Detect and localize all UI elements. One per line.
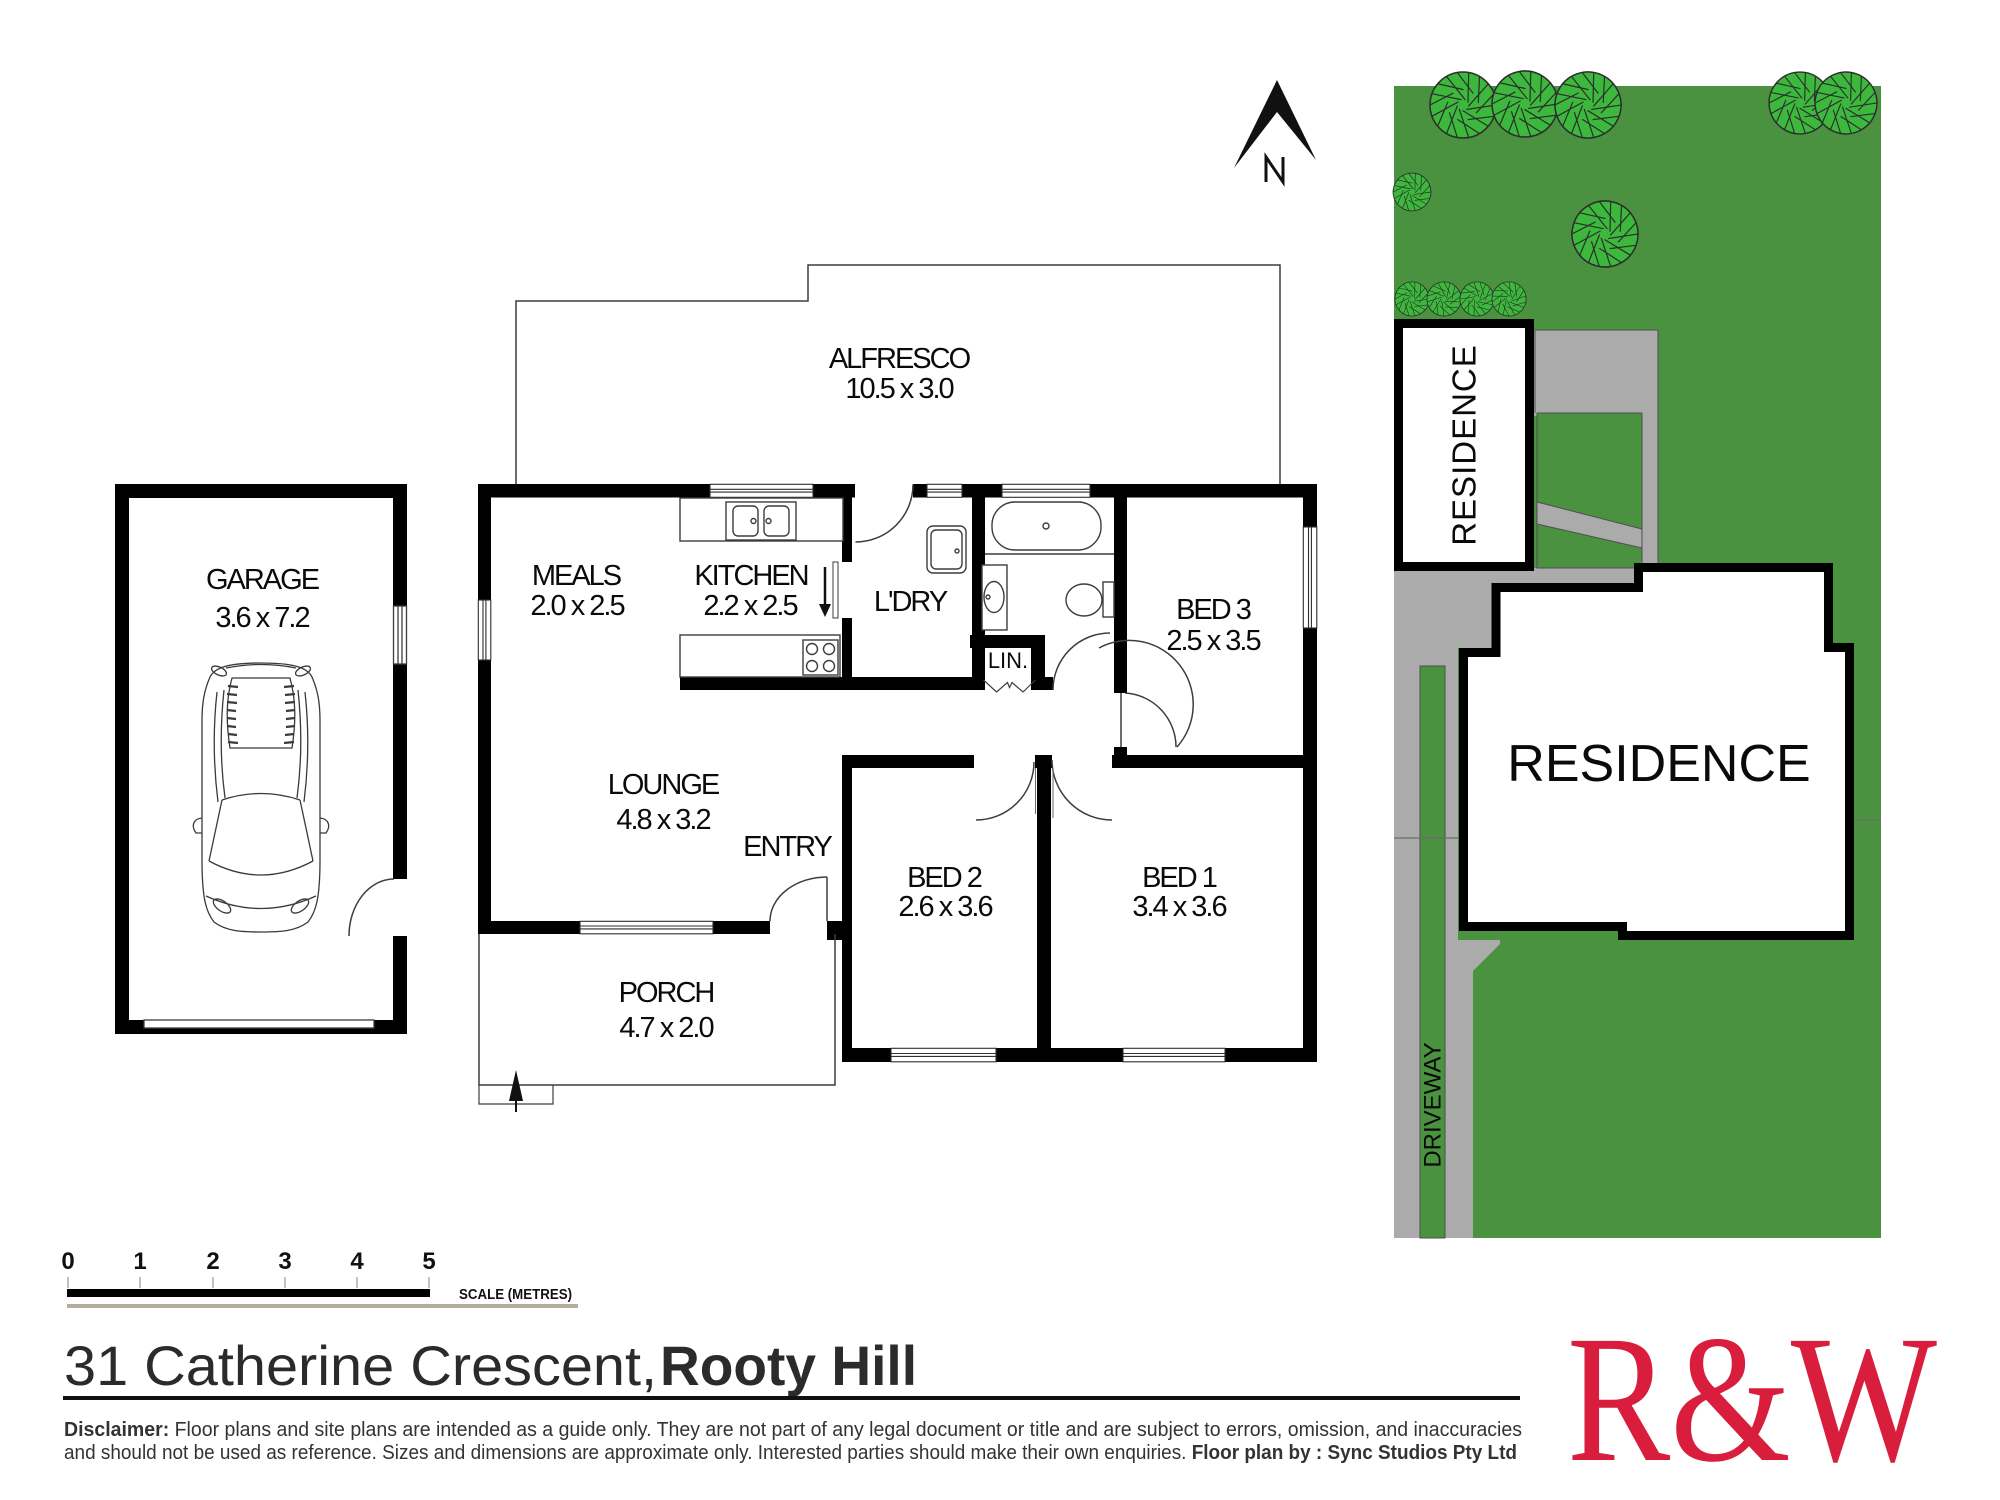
svg-text:R&W: R&W (1567, 1299, 1937, 1500)
svg-text:2.5 x 3.5: 2.5 x 3.5 (1166, 625, 1260, 657)
svg-text:RESIDENCE: RESIDENCE (1507, 735, 1810, 793)
svg-text:MEALS: MEALS (532, 560, 622, 592)
svg-text:KITCHEN: KITCHEN (694, 560, 807, 592)
svg-text:BED 2: BED 2 (907, 862, 982, 894)
svg-text:3.6 x 7.2: 3.6 x 7.2 (215, 602, 309, 634)
svg-text:RESIDENCE: RESIDENCE (1446, 344, 1483, 546)
svg-text:ENTRY: ENTRY (743, 831, 832, 863)
svg-text:PORCH: PORCH (619, 977, 714, 1009)
svg-text:ALFRESCO: ALFRESCO (829, 343, 971, 375)
svg-text:GARAGE: GARAGE (206, 564, 320, 596)
svg-text:31 Catherine Crescent,: 31 Catherine Crescent, (64, 1334, 657, 1397)
svg-text:2.6 x 3.6: 2.6 x 3.6 (898, 891, 992, 923)
svg-text:0: 0 (61, 1248, 74, 1275)
svg-text:LIN.: LIN. (988, 648, 1028, 673)
svg-text:BED 3: BED 3 (1176, 594, 1251, 626)
svg-text:2.2 x 2.5: 2.2 x 2.5 (703, 590, 797, 622)
svg-text:3: 3 (278, 1248, 291, 1275)
svg-text:SCALE (METRES): SCALE (METRES) (459, 1286, 572, 1303)
svg-text:3.4 x 3.6: 3.4 x 3.6 (1132, 891, 1226, 923)
svg-text:2: 2 (206, 1248, 219, 1275)
svg-text:4: 4 (350, 1248, 364, 1275)
svg-text:1: 1 (133, 1248, 146, 1275)
svg-text:LOUNGE: LOUNGE (608, 769, 720, 801)
svg-text:10.5 x 3.0: 10.5 x 3.0 (845, 373, 953, 405)
svg-text:4.7 x 2.0: 4.7 x 2.0 (619, 1012, 713, 1044)
svg-text:BED 1: BED 1 (1142, 862, 1217, 894)
svg-text:and should not be used as refe: and should not be used as reference. Siz… (64, 1442, 1517, 1464)
svg-text:5: 5 (422, 1248, 435, 1275)
svg-text:2.0 x 2.5: 2.0 x 2.5 (530, 590, 624, 622)
svg-text:Disclaimer: Floor plans and si: Disclaimer: Floor plans and site plans a… (64, 1419, 1522, 1441)
svg-text:4.8 x 3.2: 4.8 x 3.2 (616, 804, 710, 836)
svg-text:Rooty Hill: Rooty Hill (660, 1334, 917, 1397)
svg-text:DRIVEWAY: DRIVEWAY (1420, 1042, 1447, 1167)
svg-text:L'DRY: L'DRY (874, 586, 948, 618)
